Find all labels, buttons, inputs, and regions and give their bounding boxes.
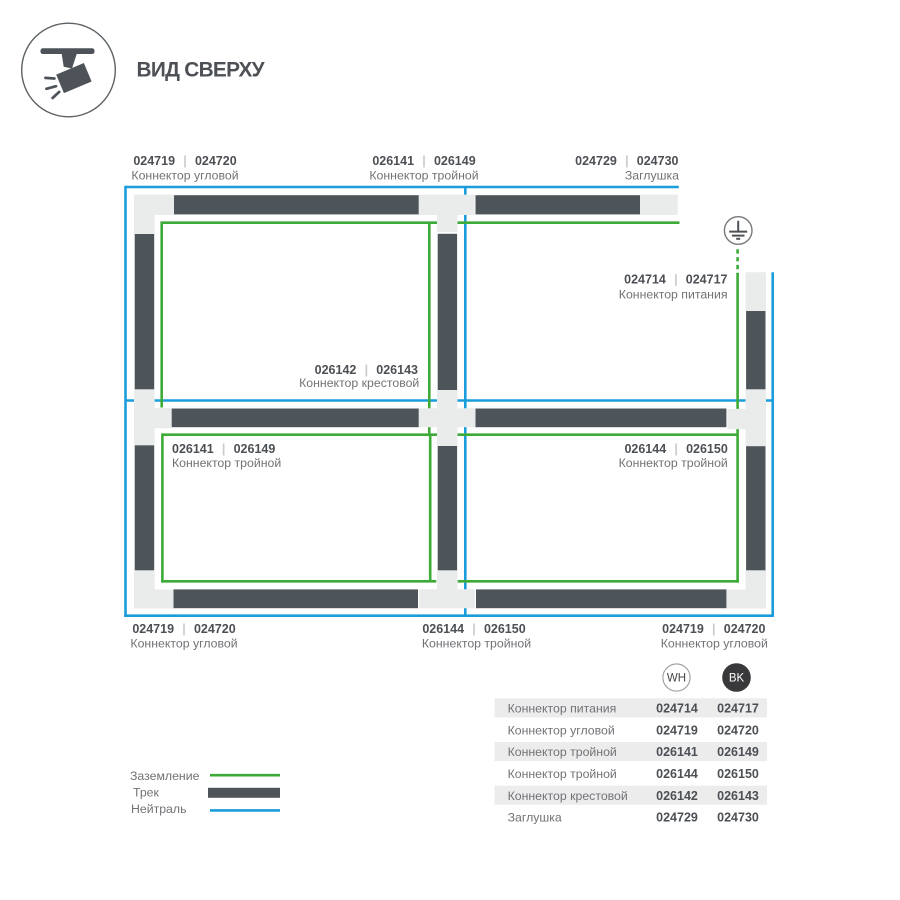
svg-text:026141: 026141 — [656, 745, 698, 759]
svg-text:Нейтраль: Нейтраль — [131, 802, 186, 816]
svg-text:Коннектор угловой: Коннектор угловой — [661, 637, 768, 651]
svg-text:024714: 024714 — [656, 702, 698, 716]
svg-text:024720: 024720 — [717, 723, 759, 737]
svg-text:Заглушка: Заглушка — [625, 168, 679, 182]
svg-text:Коннектор питания: Коннектор питания — [619, 288, 728, 302]
svg-text:024719|024720: 024719|024720 — [662, 622, 765, 636]
svg-text:Коннектор тройной: Коннектор тройной — [508, 767, 617, 781]
svg-text:024717: 024717 — [717, 702, 759, 716]
svg-text:026144|026150: 026144|026150 — [422, 622, 525, 636]
svg-text:026150: 026150 — [717, 767, 759, 781]
svg-text:024714|024717: 024714|024717 — [624, 273, 727, 287]
svg-text:Коннектор тройной: Коннектор тройной — [422, 637, 531, 651]
svg-text:024729|024730: 024729|024730 — [575, 154, 678, 168]
svg-text:026149: 026149 — [717, 745, 759, 759]
svg-text:Трек: Трек — [133, 785, 159, 799]
svg-text:026141|026149: 026141|026149 — [372, 154, 475, 168]
svg-text:Коннектор тройной: Коннектор тройной — [508, 745, 617, 759]
svg-text:Коннектор угловой: Коннектор угловой — [130, 637, 237, 651]
svg-text:026142|026143: 026142|026143 — [315, 363, 418, 377]
svg-text:Коннектор тройной: Коннектор тройной — [369, 168, 478, 182]
svg-text:BK: BK — [729, 673, 745, 685]
svg-text:024719: 024719 — [656, 723, 698, 737]
svg-text:Коннектор угловой: Коннектор угловой — [131, 168, 238, 182]
svg-text:026144|026150: 026144|026150 — [624, 442, 727, 456]
svg-text:Коннектор крестовой: Коннектор крестовой — [508, 789, 628, 803]
svg-text:024719|024720: 024719|024720 — [133, 154, 236, 168]
svg-text:024719|024720: 024719|024720 — [132, 622, 235, 636]
svg-text:024729: 024729 — [656, 811, 698, 825]
svg-text:024730: 024730 — [717, 811, 759, 825]
svg-text:ВИД СВЕРХУ: ВИД СВЕРХУ — [137, 59, 266, 82]
svg-text:026143: 026143 — [717, 789, 759, 803]
svg-text:Коннектор тройной: Коннектор тройной — [172, 456, 281, 470]
svg-text:Заземление: Заземление — [130, 769, 200, 783]
svg-text:Заглушка: Заглушка — [508, 811, 562, 825]
svg-text:026141|026149: 026141|026149 — [172, 442, 275, 456]
svg-text:026144: 026144 — [656, 767, 698, 781]
svg-text:Коннектор питания: Коннектор питания — [508, 702, 617, 716]
svg-text:Коннектор угловой: Коннектор угловой — [508, 723, 615, 737]
svg-text:Коннектор крестовой: Коннектор крестовой — [299, 376, 419, 390]
svg-text:026142: 026142 — [656, 789, 698, 803]
svg-text:WH: WH — [667, 673, 686, 685]
svg-text:Коннектор тройной: Коннектор тройной — [619, 456, 728, 470]
